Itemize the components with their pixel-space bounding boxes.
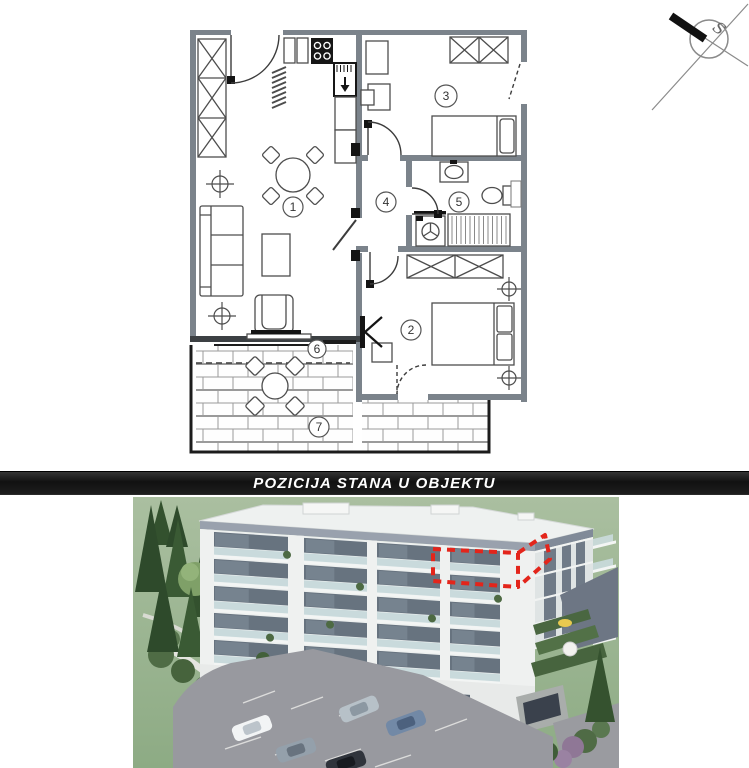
svg-text:4: 4: [383, 195, 390, 209]
svg-text:5: 5: [456, 195, 463, 209]
room-label-7: 7: [309, 417, 329, 437]
sofa: [200, 206, 243, 296]
svg-text:6: 6: [314, 342, 321, 356]
listing-page: 1 2 3 4 5 6 7 S POZICIJA STANA U OBJEKTU: [0, 0, 749, 768]
coffee-table: [262, 234, 290, 276]
svg-text:3: 3: [443, 89, 450, 103]
room-label-6: 6: [308, 340, 326, 358]
svg-text:1: 1: [290, 200, 297, 214]
armchair-tv: [247, 295, 311, 339]
kitchen: [284, 38, 356, 163]
radiator: [272, 67, 286, 108]
room-label-4: 4: [376, 192, 396, 212]
banner-title: POZICIJA STANA U OBJEKTU: [253, 475, 495, 492]
wardrobe-living: [198, 39, 226, 157]
floor-plan: 1 2 3 4 5 6 7 S: [0, 0, 749, 470]
svg-text:2: 2: [408, 323, 415, 337]
room-label-2: 2: [401, 320, 421, 340]
building-render: [133, 497, 619, 768]
compass-icon: S: [652, 4, 748, 110]
svg-text:7: 7: [316, 420, 323, 434]
room-label-1: 1: [283, 197, 303, 217]
dining-table: [262, 146, 324, 205]
room-label-5: 5: [449, 192, 469, 212]
room-label-3: 3: [435, 85, 457, 107]
section-banner: POZICIJA STANA U OBJEKTU: [0, 471, 749, 495]
